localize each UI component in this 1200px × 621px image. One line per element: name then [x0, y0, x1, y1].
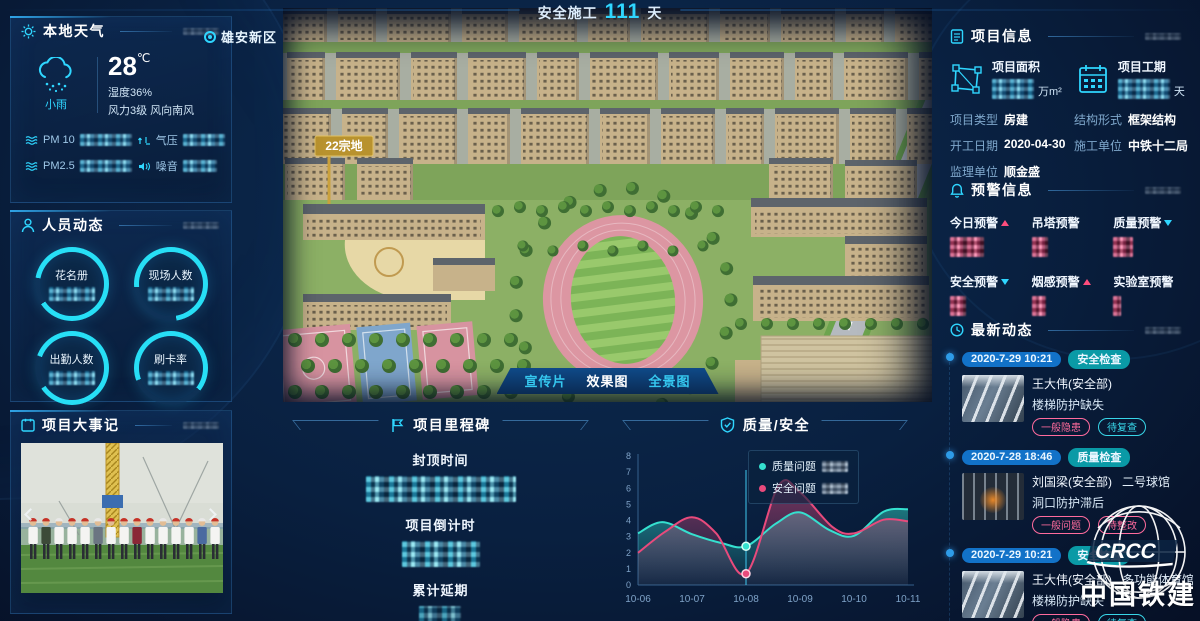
inspector-name: 王大伟(安全部)	[1032, 375, 1112, 392]
metric-label: 气压	[156, 132, 178, 148]
carousel-next-button[interactable]	[206, 510, 218, 522]
milestone-panel: 项目里程碑 封顶时间 项目倒计时 累计延期	[283, 408, 598, 618]
info-stats: 项目面积 万m² 项目工期 天	[940, 50, 1193, 101]
milestone-label: 封顶时间	[412, 450, 468, 469]
timeline-dot	[946, 451, 954, 459]
header-divider	[120, 31, 172, 32]
aerial-render: 22宗地	[283, 8, 932, 402]
info-row-structure: 结构形式框架结构	[1074, 111, 1189, 128]
stat-circle-swipe-rate: 刷卡率	[134, 331, 208, 405]
blurred-warning-count	[950, 237, 984, 257]
svg-text:5: 5	[626, 499, 631, 509]
blurred-metric-value	[183, 160, 217, 172]
chevron-right-icon	[204, 508, 217, 521]
blurred-metric-value	[80, 134, 132, 146]
top-bar-decoration-left	[0, 7, 520, 13]
quality-safety-panel: 质量/安全 01234567810-0610-0710-0810-0910-10…	[598, 408, 932, 618]
header-divider	[135, 425, 173, 426]
header-decoration-right	[814, 420, 908, 430]
svg-text:7: 7	[626, 467, 631, 477]
blurred-date-value	[366, 476, 516, 502]
entry-date-badge: 2020-7-28 18:46	[962, 450, 1061, 465]
weather-panel: 本地天气 小雨 28℃ 湿度36% 风力3级 风向南风	[10, 16, 232, 203]
svg-text:3: 3	[626, 532, 631, 542]
blurred-stat-value	[148, 287, 194, 301]
blurred-header-text	[183, 222, 219, 229]
region-tag-label: 雄安新区	[221, 27, 277, 46]
weather-current: 小雨 28℃ 湿度36% 风力3级 风向南风	[11, 45, 231, 120]
safety-days-counter: 安全施工 111 天	[520, 0, 681, 24]
svg-text:8: 8	[626, 451, 631, 461]
view-button-panorama[interactable]: 全景图	[649, 371, 691, 390]
blurred-countdown-value	[402, 541, 480, 567]
header-divider	[1048, 36, 1134, 37]
stat-label: 花名册	[55, 267, 88, 283]
blurred-tooltip-value	[822, 483, 848, 494]
weather-metrics: PM 10 气压 PM2.5 噪音	[11, 120, 231, 174]
info-row-start-date: 开工日期2020-04-30	[950, 137, 1068, 154]
warning-today: 今日预警	[950, 214, 1026, 257]
view-button-render[interactable]: 效果图	[586, 371, 628, 390]
warning-quality: 质量预警	[1113, 214, 1189, 257]
chevron-left-icon	[24, 508, 37, 521]
blurred-stat-value	[49, 371, 95, 385]
info-rows: 项目类型房建 结构形式框架结构 开工日期2020-04-30 施工单位中铁十二局…	[940, 101, 1193, 180]
updates-title: 最新动态	[971, 320, 1033, 340]
update-entry[interactable]: 2020-7-29 10:21 安全检查 王大伟(安全部)多功能体育馆 楼梯防护…	[946, 546, 1193, 621]
blurred-duration-value	[1118, 79, 1170, 99]
update-entry[interactable]: 2020-7-28 18:46 质量检查 刘国梁(安全部)二号球馆 洞口防护滞后…	[946, 448, 1193, 544]
humidity-text: 湿度36%	[108, 84, 194, 100]
stat-label: 出勤人数	[50, 351, 94, 367]
milestone-items: 封顶时间 项目倒计时 累计延期	[283, 442, 598, 621]
info-title: 项目信息	[971, 26, 1033, 46]
stat-circle-attendance: 出勤人数	[35, 331, 109, 405]
header-divider	[1048, 330, 1134, 331]
dashboard: 安全施工 111 天 本地天气	[0, 0, 1200, 621]
safety-legend-dot	[759, 485, 766, 492]
warnings-grid: 今日预警 吊塔预警 质量预警 安全预警 烟感预警 实验室预警	[940, 204, 1193, 316]
svg-text:0: 0	[626, 580, 631, 590]
issue-description: 楼梯防护缺失	[1032, 396, 1146, 413]
header-decoration-left	[292, 420, 386, 430]
personnel-title: 人员动态	[42, 215, 104, 235]
trend-up-icon	[1001, 220, 1009, 226]
site-3d-map: 22宗地 宣传片 效果图 全景图	[283, 8, 932, 402]
tooltip-quality-row: 质量问题	[759, 458, 848, 474]
plot-tag-label: 22宗地	[325, 138, 362, 153]
personnel-stats: 花名册 现场人数 出勤人数 刷卡率	[11, 239, 231, 405]
metric-noise: 噪音	[138, 158, 225, 174]
pressure-icon	[138, 135, 151, 146]
milestone-delay: 累计延期	[412, 580, 468, 621]
weather-title: 本地天气	[43, 21, 105, 41]
metric-pm25: PM2.5	[25, 158, 132, 174]
shield-check-icon	[720, 417, 735, 433]
svg-text:10-08: 10-08	[733, 594, 759, 605]
severity-tag: 一般隐患	[1032, 614, 1090, 621]
chart-header: 质量/安全	[598, 408, 932, 442]
svg-text:10-11: 10-11	[896, 594, 921, 605]
safety-days-label: 安全施工	[538, 3, 598, 23]
svg-text:1: 1	[626, 564, 631, 574]
status-tag: 待整改	[1098, 516, 1146, 534]
status-tag: 待复查	[1098, 418, 1146, 436]
blurred-warning-count	[1113, 296, 1121, 316]
milestone-topping-time: 封顶时间	[366, 450, 516, 502]
latest-updates-panel: 最新动态 2020-7-29 10:21 安全检查 王大伟(安全部) 楼梯防护缺…	[940, 316, 1193, 621]
milestone-events-panel: 项目大事记	[10, 410, 232, 614]
safety-highlight-dot	[742, 570, 750, 578]
chart-tooltip: 质量问题 安全问题	[748, 450, 859, 504]
stat-circle-onsite: 现场人数	[134, 247, 208, 321]
calendar-book-icon	[21, 418, 35, 432]
blurred-warning-count	[1032, 296, 1046, 316]
person-icon	[21, 218, 35, 233]
blurred-header-text	[1145, 187, 1181, 194]
quality-legend-dot	[759, 463, 766, 470]
blurred-stat-value	[49, 287, 95, 301]
stat-label: 现场人数	[149, 267, 193, 283]
top-status-bar: 安全施工 111 天	[0, 0, 1200, 24]
update-entry[interactable]: 2020-7-29 10:21 安全检查 王大伟(安全部) 楼梯防护缺失 一般隐…	[946, 350, 1193, 446]
updates-header: 最新动态	[940, 316, 1193, 344]
blurred-warning-count	[950, 296, 966, 316]
view-button-promo[interactable]: 宣传片	[524, 371, 566, 390]
header-decoration-right	[495, 420, 589, 430]
svg-text:4: 4	[626, 516, 631, 526]
blurred-metric-value	[80, 160, 132, 172]
metric-label: PM 10	[43, 134, 75, 146]
stat-unit: 万m²	[1038, 83, 1062, 99]
sun-gear-icon	[21, 24, 36, 39]
blurred-header-text	[1145, 33, 1181, 40]
info-row-contractor: 施工单位中铁十二局	[1074, 137, 1189, 154]
warning-lab: 实验室预警	[1113, 273, 1189, 316]
updates-timeline: 2020-7-29 10:21 安全检查 王大伟(安全部) 楼梯防护缺失 一般隐…	[940, 344, 1193, 621]
temperature-unit: ℃	[137, 51, 150, 65]
header-divider	[119, 225, 172, 226]
entry-date-badge: 2020-7-29 10:21	[962, 548, 1061, 563]
safety-legend-label: 安全问题	[772, 480, 816, 496]
map-view-switcher: 宣传片 效果图 全景图	[496, 368, 718, 394]
svg-text:10-09: 10-09	[787, 594, 813, 605]
region-tag: 雄安新区	[204, 27, 277, 46]
entry-date-badge: 2020-7-29 10:21	[962, 352, 1061, 367]
severity-tag: 一般问题	[1032, 516, 1090, 534]
gymnasium-building	[735, 336, 932, 402]
blurred-area-value	[992, 79, 1034, 99]
blurred-header-text	[183, 422, 219, 429]
entry-category-badge: 质量检查	[1068, 448, 1130, 467]
milestone-label: 项目倒计时	[405, 515, 475, 534]
blurred-stat-value	[148, 371, 194, 385]
events-header: 项目大事记	[11, 411, 231, 439]
svg-text:6: 6	[626, 483, 631, 493]
svg-text:10-07: 10-07	[679, 594, 705, 605]
entry-photo-thumbnail[interactable]	[962, 571, 1024, 618]
quality-legend-label: 质量问题	[772, 458, 816, 474]
mist-icon	[25, 161, 38, 172]
warnings-title: 预警信息	[971, 180, 1033, 200]
vertical-divider	[97, 57, 98, 113]
blurred-tooltip-value	[822, 461, 848, 472]
warning-smoke: 烟感预警	[1032, 273, 1108, 316]
milestone-header: 项目里程碑	[283, 408, 598, 442]
project-info-panel: 项目信息 项目面积 万m²	[940, 22, 1193, 174]
flag-icon	[390, 418, 405, 433]
weather-condition: 小雨	[45, 96, 67, 112]
wind-text: 风力3级 风向南风	[108, 102, 194, 118]
trend-down-icon	[1164, 220, 1172, 226]
trend-up-icon	[1083, 279, 1091, 285]
blurred-warning-count	[1032, 237, 1048, 257]
warnings-header: 预警信息	[940, 176, 1193, 204]
header-decoration-left	[622, 420, 716, 430]
issue-location: 二号球馆	[1122, 473, 1170, 490]
status-tag: 待复查	[1098, 614, 1146, 621]
inspector-name: 王大伟(安全部)	[1032, 571, 1112, 588]
bell-icon	[950, 183, 964, 198]
safety-days-unit: 天	[647, 3, 662, 23]
inspector-name: 刘国梁(安全部)	[1032, 473, 1112, 490]
blurred-header-text	[1145, 327, 1181, 334]
warning-safety: 安全预警	[950, 273, 1026, 316]
groundbreaking-photo	[21, 443, 223, 593]
rain-cloud-icon	[34, 57, 78, 93]
milestone-countdown: 项目倒计时	[402, 515, 480, 567]
stat-label: 刷卡率	[154, 351, 187, 367]
personnel-panel: 人员动态 花名册 现场人数 出勤人数 刷卡率	[10, 210, 232, 402]
milestone-title: 项目里程碑	[413, 415, 491, 435]
issue-location: 多功能体育馆	[1122, 571, 1193, 588]
chart-title: 质量/安全	[743, 415, 810, 435]
metric-label: 噪音	[156, 158, 178, 174]
calendar-icon	[1076, 62, 1110, 96]
entry-photo-thumbnail[interactable]	[962, 473, 1024, 520]
stat-label: 项目工期	[1118, 58, 1185, 75]
events-photo	[21, 443, 223, 593]
temperature-value: 28℃	[108, 51, 194, 82]
safety-days-value: 111	[605, 0, 641, 24]
speaker-icon	[138, 161, 151, 172]
blurred-metric-value	[183, 134, 225, 146]
svg-text:10-06: 10-06	[625, 594, 651, 605]
top-bar-decoration-right	[680, 7, 1200, 13]
entry-category-badge: 安全检查	[1068, 546, 1130, 565]
header-divider	[1048, 190, 1134, 191]
carousel-prev-button[interactable]	[26, 510, 38, 522]
warnings-panel: 预警信息 今日预警 吊塔预警 质量预警 安全预警 烟感预警	[940, 176, 1193, 314]
metric-label: PM2.5	[43, 160, 75, 172]
timeline-dot	[946, 549, 954, 557]
svg-text:10-10: 10-10	[841, 594, 867, 605]
milestone-label: 累计延期	[412, 580, 468, 599]
severity-tag: 一般隐患	[1032, 418, 1090, 436]
timeline-dot	[946, 353, 954, 361]
area-survey-icon	[950, 62, 984, 96]
quality-highlight-dot	[742, 542, 750, 550]
blurred-delay-value	[419, 606, 461, 621]
issue-description: 楼梯防护缺失	[1032, 592, 1193, 609]
tooltip-safety-row: 安全问题	[759, 480, 848, 496]
trend-down-icon	[1001, 279, 1009, 285]
metric-pm10: PM 10	[25, 132, 132, 148]
location-pin-icon	[204, 31, 216, 43]
entry-photo-thumbnail[interactable]	[962, 375, 1024, 422]
stat-project-duration: 项目工期 天	[1076, 58, 1185, 99]
metric-pressure: 气压	[138, 132, 225, 148]
info-row-type: 项目类型房建	[950, 111, 1068, 128]
issue-description: 洞口防护滞后	[1032, 494, 1170, 511]
mist-icon	[25, 135, 38, 146]
stat-unit: 天	[1174, 83, 1185, 99]
document-icon	[950, 29, 964, 44]
stat-project-area: 项目面积 万m²	[950, 58, 1062, 99]
warning-crane: 吊塔预警	[1032, 214, 1108, 257]
entry-category-badge: 安全检查	[1068, 350, 1130, 369]
events-title: 项目大事记	[42, 415, 120, 435]
stat-circle-roster: 花名册	[35, 247, 109, 321]
stat-label: 项目面积	[992, 58, 1062, 75]
clock-icon	[950, 323, 964, 337]
svg-text:2: 2	[626, 548, 631, 558]
personnel-header: 人员动态	[11, 211, 231, 239]
info-header: 项目信息	[940, 22, 1193, 50]
blurred-warning-count	[1113, 237, 1133, 257]
